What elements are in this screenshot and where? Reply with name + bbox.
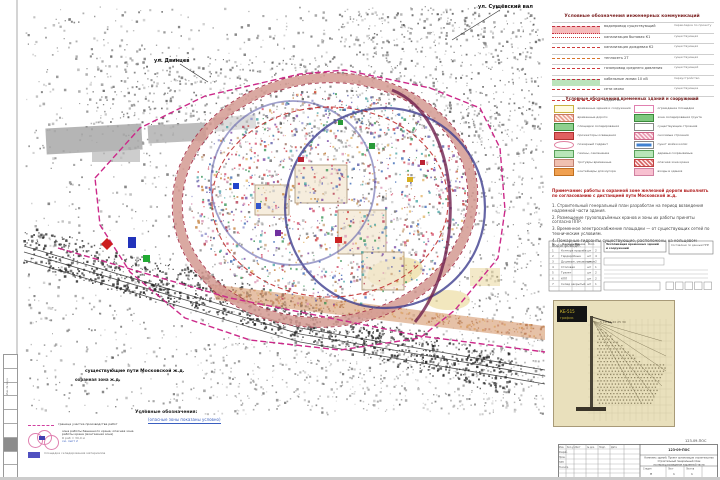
pink-small-swatch <box>634 168 654 176</box>
side-stamp-cell <box>4 396 17 410</box>
site-legend-row: пункт мойки колёс <box>634 140 714 149</box>
site-legend-row: временные дороги <box>554 113 634 122</box>
explication-side-note: Составлено по данным ППР <box>671 243 709 247</box>
utility-row: сети связисуществующие <box>552 85 714 96</box>
utility-label: канализация дождевая К2 <box>604 45 670 49</box>
doc-number-label: 123-09-ПОС <box>685 439 707 443</box>
street-label-left: ул. Двинцев <box>154 58 189 64</box>
explication-cell: 2 <box>595 248 597 252</box>
bottom-legend-label: граница участка производства работ <box>58 423 138 427</box>
magenta-dash-swatch <box>28 425 54 426</box>
explication-cell: 2 <box>595 271 597 275</box>
site-legend-table: временные здания и сооружениявременные д… <box>554 104 714 176</box>
side-stamp-cell <box>4 438 17 452</box>
bottom-legend-item: зона работы башенного крана; опасная зон… <box>28 430 140 450</box>
explication-cell: 3 <box>552 260 554 264</box>
blue-rect-swatch <box>28 452 40 458</box>
bottom-legend-texts: площадка складирования материалов <box>44 452 124 456</box>
site-legend-label: временные здания и сооружения <box>578 107 634 111</box>
rail-note-1: существующие пути Московской ж.д. <box>85 367 185 374</box>
explication-table: №НаименованиеЕд.Кол.1Контора прорабашт22… <box>548 240 714 294</box>
circle-pink-swatch <box>554 141 574 149</box>
site-legend-row: сносимые строения <box>634 131 714 140</box>
crane-chart-svg: КБ-515 график 5 10 15 20 25 30 <box>554 301 674 426</box>
site-legend-row: опасная зона крана <box>634 158 714 167</box>
site-legend-label: входы в здания <box>658 170 714 174</box>
explication-header: Кол. <box>588 242 595 246</box>
bottom-legend-texts: граница участка производства работ <box>58 423 138 427</box>
crane-badge-line2: график <box>560 316 574 320</box>
utility-row: кабельные линии 10 кВпереустройство <box>552 75 714 86</box>
site-legend-row: существующие строения <box>634 122 714 131</box>
utility-note: существующие <box>674 87 714 91</box>
explication-cell: шт <box>587 282 592 286</box>
bottom-legend-item <box>28 461 140 472</box>
explication-title-2: и сооружений <box>606 246 629 250</box>
utility-label: сети связи <box>604 87 670 91</box>
explication-cell: шт <box>587 265 592 269</box>
site-legend-label: временные дороги <box>578 116 634 120</box>
side-stamp: Инв. № подл. <box>3 354 18 480</box>
new-buildings <box>255 165 404 290</box>
title-block-stage-label: Лист <box>668 468 674 471</box>
site-legend-label: пункт мойки колёс <box>658 143 714 147</box>
site-legend-label: газоны, озеленение <box>578 152 634 156</box>
bottom-legend-label: см. лист 2 <box>62 440 140 444</box>
utility-row: канализация дождевая К2существующая <box>552 43 714 54</box>
title-block-project-line: на период возведения надземной части <box>654 463 705 466</box>
explication-cell: шт <box>587 271 592 275</box>
utility-note: существующий <box>674 66 714 70</box>
site-legend-column: временные здания и сооружениявременные д… <box>554 104 634 176</box>
explication-cell: КПП <box>561 276 567 280</box>
explication-cell: шт <box>587 276 592 280</box>
side-stamp-label: Инв. № подл. <box>6 378 9 395</box>
note-paragraph: 1. Строительный генеральный план разрабо… <box>552 204 712 213</box>
explication-cell: 5 <box>552 271 554 275</box>
green-rect-swatch <box>554 150 574 158</box>
explication-cell: Туалет <box>560 271 572 275</box>
bottom-legend-col1: граница участка производства работзона р… <box>28 423 140 475</box>
site-legend-row: ограждение площадки <box>634 104 714 113</box>
explication-cell: 1 <box>595 265 597 269</box>
load-curves <box>593 321 666 404</box>
crane-base <box>576 407 606 411</box>
white-rect-swatch <box>634 123 654 131</box>
site-legend-row: контейнеры для мусора <box>554 167 634 176</box>
title-block-stage-value: 1 <box>673 472 675 476</box>
explication-cell: 2 <box>552 254 554 258</box>
utilities-legend-table: водопровод существующийперекладка по про… <box>552 22 714 106</box>
explication-cell: 4 <box>552 265 554 269</box>
note-paragraph: 3. Временное электроснабжение площадки —… <box>552 227 712 236</box>
bottom-legend-item: граница участка производства работ <box>28 423 140 427</box>
title-block-col-label: Дата <box>611 446 617 449</box>
utility-row: водопровод существующийперекладка по про… <box>552 22 714 33</box>
rail-note-2: охранная зона ж.д. <box>75 377 121 382</box>
site-legend-row: прожекторы освещения <box>554 131 634 140</box>
drawing-sheet: ул. Сущёвский вал ул. Двинцев существующ… <box>0 0 720 480</box>
crane-mast <box>590 316 593 409</box>
site-legend-row: площадки складирования <box>554 122 634 131</box>
side-stamp-cell <box>4 424 17 438</box>
utility-label: газопровод среднего давления <box>604 66 670 70</box>
explication-cell: 4 <box>595 254 597 258</box>
utility-line-sample <box>552 26 600 34</box>
site-legend-row: тротуары временные <box>554 158 634 167</box>
red-hatch-swatch <box>634 159 654 167</box>
utility-note: существующая <box>674 56 714 60</box>
explication-cell: 2 <box>595 260 597 264</box>
utility-note: существующая <box>674 35 714 39</box>
utility-line-sample <box>552 37 600 38</box>
site-legend-label: прожекторы освещения <box>578 134 634 138</box>
explication-cell: Контора прораба <box>561 248 587 252</box>
site-legend-row: пожарный гидрант <box>554 140 634 149</box>
green-rect-swatch <box>634 150 654 158</box>
utility-line-sample <box>552 58 600 59</box>
site-legend-title: Условные обозначения временных зданий и … <box>550 97 714 102</box>
title-block-col-label: Лист <box>575 446 581 449</box>
green-fill-swatch <box>634 114 654 122</box>
blue-dot-swatch <box>634 141 654 149</box>
title-block-stage-label: Листов <box>686 468 695 471</box>
bottom-legend-label: площадка складирования материалов <box>44 452 124 456</box>
explication-cell: Столовая <box>561 265 575 269</box>
explication-cell: 1 <box>595 282 597 286</box>
site-legend-label: контейнеры для мусора <box>578 170 634 174</box>
utility-note: перекладка по проекту <box>674 24 714 28</box>
explication-cell: Склад закрытый <box>561 282 586 286</box>
title-block-role: ГИП <box>559 461 564 464</box>
bottom-legend-subheading: (опасные зоны показаны условно) <box>148 418 221 424</box>
utility-line-sample <box>552 68 600 69</box>
explication-cell: шт <box>587 248 592 252</box>
site-legend-column: ограждение площадкизона складирования гр… <box>634 104 714 176</box>
explication-cell: 1 <box>552 248 554 252</box>
utility-line-sample <box>552 47 600 48</box>
site-legend-label: деревья сохраняемые <box>658 152 714 156</box>
explication-header: Ед. <box>575 242 580 246</box>
side-stamp-cell <box>4 355 17 369</box>
title-block-role: Пров. <box>559 456 566 459</box>
salmon-hatch-swatch <box>554 114 574 122</box>
warning-note: Примечание: работы в охранной зоне желез… <box>552 189 712 198</box>
orange-rect-swatch <box>554 168 574 176</box>
explication-cell: шт <box>587 260 592 264</box>
title-block-col-label: Подп. <box>599 446 606 449</box>
site-legend-row: зона складирования грунта <box>634 113 714 122</box>
site-legend-label: зона складирования грунта <box>658 116 714 120</box>
title-block-col-label: № док. <box>587 446 595 449</box>
utility-label: кабельные линии 10 кВ <box>604 77 670 81</box>
utilities-table-title: Условные обозначения инженерных коммуник… <box>550 14 714 19</box>
title-block-role: Н.контр. <box>559 466 569 469</box>
title-block: Изм.Кол.уч.Лист№ док.Подп.ДатаРазраб.Про… <box>558 444 718 478</box>
explication-cell: 2 <box>595 276 597 280</box>
pink-circles-swatch <box>28 430 58 450</box>
utility-note: существующая <box>674 45 714 49</box>
explication-header: Наименование <box>562 242 585 246</box>
utility-label: теплосеть 2Т <box>604 56 670 60</box>
site-legend-label: ограждение площадки <box>658 107 714 111</box>
site-legend-label: пожарный гидрант <box>578 143 634 147</box>
side-stamp-cell <box>4 452 17 466</box>
explication-cell: 6 <box>552 276 554 280</box>
title-block-stage-value: П <box>650 472 652 476</box>
utility-row: газопровод среднего давлениясуществующий <box>552 64 714 75</box>
load-chart-dots <box>597 329 666 404</box>
site-legend-label: опасная зона крана <box>658 161 714 165</box>
title-block-doc-number: 123-09-ПОС <box>668 448 690 452</box>
utility-note: переустройство <box>674 77 714 81</box>
site-legend-row: газоны, озеленение <box>554 149 634 158</box>
side-stamp-cell <box>4 410 17 424</box>
red-sq-swatch <box>554 132 574 140</box>
site-legend-label: тротуары временные <box>578 161 634 165</box>
bottom-legend-heading: Условные обозначения: <box>135 410 197 415</box>
title-block-col-label: Изм. <box>559 446 564 449</box>
utility-line-sample <box>552 89 600 90</box>
orange-hatch-swatch <box>28 461 56 472</box>
explication-cell: 7 <box>552 282 554 286</box>
site-legend-row: деревья сохраняемые <box>634 149 714 158</box>
site-legend-row: временные здания и сооружения <box>554 104 634 113</box>
explication-cell: Гардеробные <box>561 254 581 258</box>
crane-badge-line1: КБ-515 <box>560 309 575 314</box>
utility-row: канализация бытовая К1существующая <box>552 33 714 44</box>
explication-header: № <box>552 242 555 246</box>
title-block-role: Разраб. <box>559 451 568 454</box>
site-legend-label: существующие строения <box>658 125 714 129</box>
salmon-rect-swatch <box>554 159 574 167</box>
pink-hatch-swatch <box>634 132 654 140</box>
site-legend-label: площадки складирования <box>578 125 634 129</box>
bottom-legend-item: площадка складирования материалов <box>28 452 140 458</box>
utility-line-sample <box>552 79 600 86</box>
explication-cell: шт <box>587 254 592 258</box>
title-block-stage-label: Стадия <box>643 468 652 471</box>
note-paragraph: 2. Размещение грузоподъёмных кранов и зо… <box>552 216 712 225</box>
pink-outline-swatch <box>634 105 654 113</box>
utility-label: водопровод существующий <box>604 24 670 28</box>
outline-yellow-swatch <box>554 105 574 113</box>
site-legend-label: сносимые строения <box>658 134 714 138</box>
title-block-stage-value: 1 <box>691 472 693 476</box>
crane-load-chart-inset: КБ-515 график 5 10 15 20 25 30 <box>553 300 675 427</box>
green-sq-swatch <box>554 123 574 131</box>
site-legend-row: входы в здания <box>634 167 714 176</box>
utility-row: теплосеть 2Тсуществующая <box>552 54 714 65</box>
street-label-top: ул. Сущёвский вал <box>478 3 533 10</box>
utility-label: канализация бытовая К1 <box>604 35 670 39</box>
